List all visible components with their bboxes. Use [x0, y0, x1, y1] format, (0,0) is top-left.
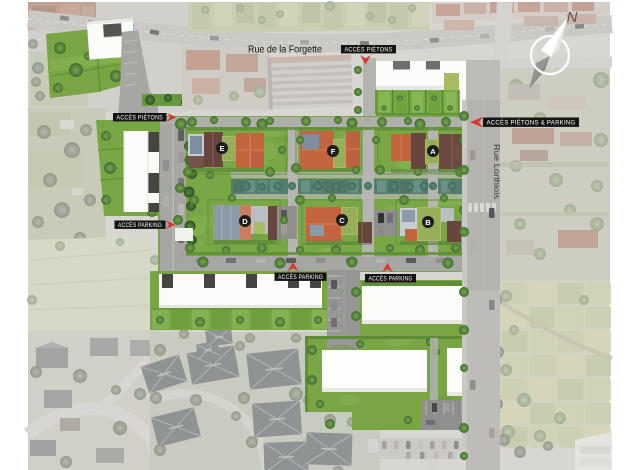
svg-text:ACCÈS PARKING: ACCÈS PARKING: [369, 273, 413, 282]
svg-text:ACCÈS PARKING: ACCÈS PARKING: [278, 272, 323, 281]
svg-text:Rue de la Forgette: Rue de la Forgette: [248, 45, 322, 56]
svg-text:Rue Lorthiois: Rue Lorthiois: [492, 144, 501, 199]
svg-text:F: F: [331, 147, 336, 156]
svg-text:ACCÈS PIÉTONS & PARKING: ACCÈS PIÉTONS & PARKING: [487, 117, 576, 126]
svg-text:A: A: [430, 147, 436, 156]
svg-text:E: E: [219, 144, 224, 153]
svg-text:N: N: [567, 9, 578, 26]
svg-text:D: D: [242, 217, 248, 226]
svg-text:C: C: [339, 216, 345, 225]
svg-text:ACCÈS PIÉTONS: ACCÈS PIÉTONS: [345, 44, 393, 53]
svg-text:ACCÈS PIÉTONS: ACCÈS PIÉTONS: [117, 112, 164, 121]
svg-text:B: B: [425, 218, 431, 227]
svg-text:ACCÈS PARKING: ACCÈS PARKING: [118, 220, 162, 229]
